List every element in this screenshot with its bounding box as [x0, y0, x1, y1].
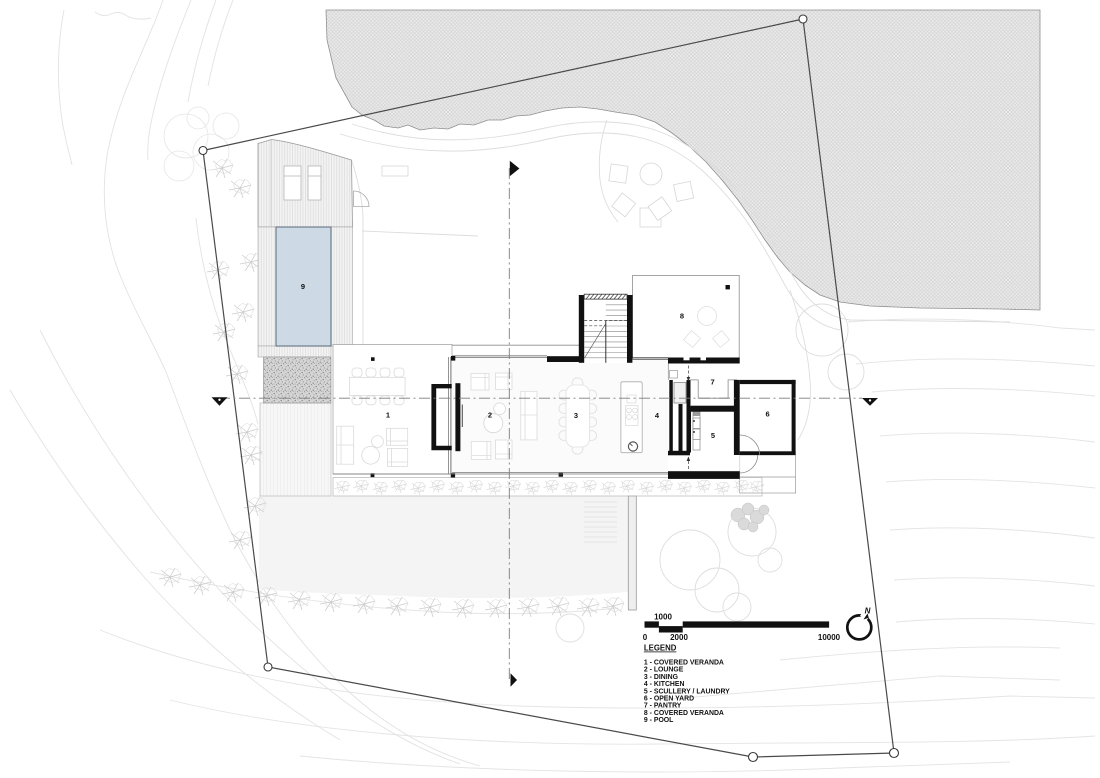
svg-text:5 - SCULLERY / LAUNDRY: 5 - SCULLERY / LAUNDRY — [644, 688, 730, 695]
svg-text:6: 6 — [766, 410, 770, 419]
svg-text:4 - KITCHEN: 4 - KITCHEN — [644, 681, 685, 688]
svg-text:9: 9 — [301, 282, 305, 291]
svg-text:8: 8 — [680, 312, 684, 321]
svg-text:2000: 2000 — [670, 633, 688, 642]
svg-text:0: 0 — [643, 633, 648, 642]
svg-text:9 - POOL: 9 - POOL — [644, 717, 673, 724]
svg-text:LEGEND: LEGEND — [644, 644, 677, 653]
svg-text:2: 2 — [488, 411, 492, 420]
svg-text:3 - DINING: 3 - DINING — [644, 674, 678, 681]
svg-text:1000: 1000 — [654, 613, 672, 622]
svg-text:1 - COVERED VERANDA: 1 - COVERED VERANDA — [644, 660, 724, 667]
svg-text:7: 7 — [711, 377, 715, 386]
svg-text:5: 5 — [711, 431, 715, 440]
svg-text:10000: 10000 — [818, 633, 841, 642]
svg-text:2 - LOUNGE: 2 - LOUNGE — [644, 667, 684, 674]
svg-text:6 - OPEN YARD: 6 - OPEN YARD — [644, 696, 694, 703]
svg-text:7 - PANTRY: 7 - PANTRY — [644, 703, 682, 710]
svg-text:1: 1 — [386, 411, 390, 420]
svg-text:3: 3 — [574, 411, 578, 420]
svg-text:N: N — [865, 607, 871, 616]
svg-text:8 - COVERED VERANDA: 8 - COVERED VERANDA — [644, 710, 724, 717]
